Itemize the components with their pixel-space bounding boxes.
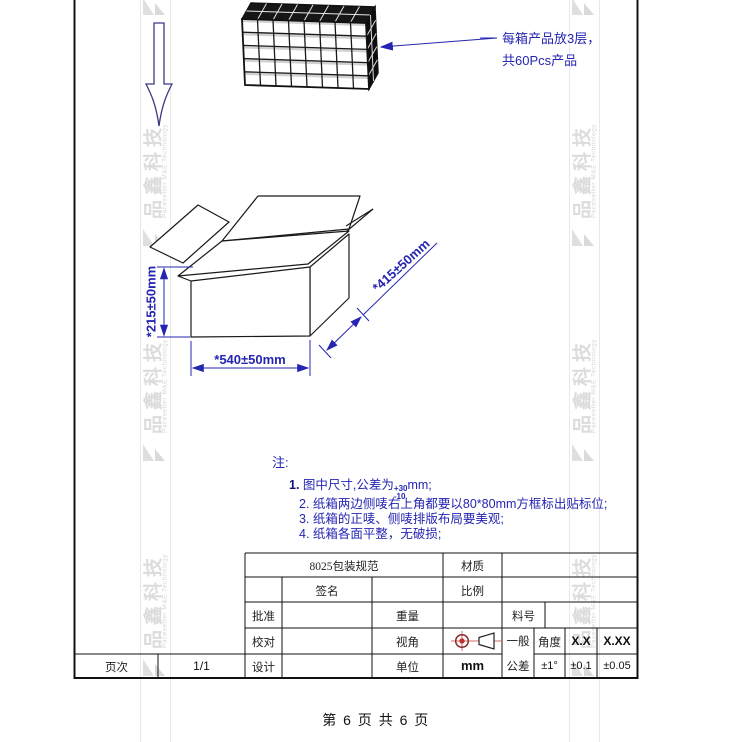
note-1-number: 1. xyxy=(289,478,299,492)
tolerance-col-xx: X.XX xyxy=(597,634,637,648)
unit-value: mm xyxy=(443,658,502,673)
callout-leader-line xyxy=(381,38,497,47)
general-tolerance-label-2: 公差 xyxy=(502,658,534,674)
drawing-sheet: 品鑫科技 Pacesetter M&E Technology 品鑫科技 Pace… xyxy=(0,0,750,742)
notes-heading: 注: xyxy=(272,452,289,471)
drawing-canvas xyxy=(0,0,750,742)
product-stack-drawing xyxy=(242,3,378,89)
xx-tolerance-value: ±0.05 xyxy=(597,660,637,672)
page-footer: 第 6 页 共 6 页 xyxy=(276,710,476,730)
design-label: 设计 xyxy=(245,659,282,675)
down-arrow xyxy=(146,23,172,126)
first-angle-projection-icon xyxy=(451,631,503,651)
dimension-width-label: *540±50mm xyxy=(190,352,310,367)
weight-label: 重量 xyxy=(372,608,443,624)
dimension-height-label: *215±50mm xyxy=(144,242,159,362)
x-tolerance-value: ±0.1 xyxy=(565,660,597,672)
angle-tolerance-value: ±1° xyxy=(534,660,565,672)
note-1-body: 图中尺寸,公差为 xyxy=(299,478,393,492)
signature-label: 签名 xyxy=(282,583,372,599)
callout-line1: 每箱产品放3层， xyxy=(502,31,600,46)
angle-label: 角度 xyxy=(534,634,565,650)
page-index-value: 1/1 xyxy=(158,659,245,673)
part-no-label: 料号 xyxy=(502,608,545,624)
note-1-tail: mm; xyxy=(407,478,431,492)
tolerance-col-x: X.X xyxy=(565,634,597,648)
proofread-label: 校对 xyxy=(245,634,282,650)
title-block-title: 8025包装规范 xyxy=(245,558,443,574)
unit-label: 单位 xyxy=(372,659,443,675)
scale-label: 比例 xyxy=(443,583,502,599)
note-item-4: 4. 纸箱各面平整，无破损; xyxy=(299,523,441,542)
material-label: 材质 xyxy=(443,558,502,574)
view-angle-label: 视角 xyxy=(372,634,443,650)
callout-line2: 共60Pcs产品 xyxy=(502,53,577,68)
approve-label: 批准 xyxy=(245,608,282,624)
page-index-label: 页次 xyxy=(75,659,158,675)
general-tolerance-label-1: 一般 xyxy=(502,633,534,649)
carton-front-face xyxy=(191,267,310,337)
